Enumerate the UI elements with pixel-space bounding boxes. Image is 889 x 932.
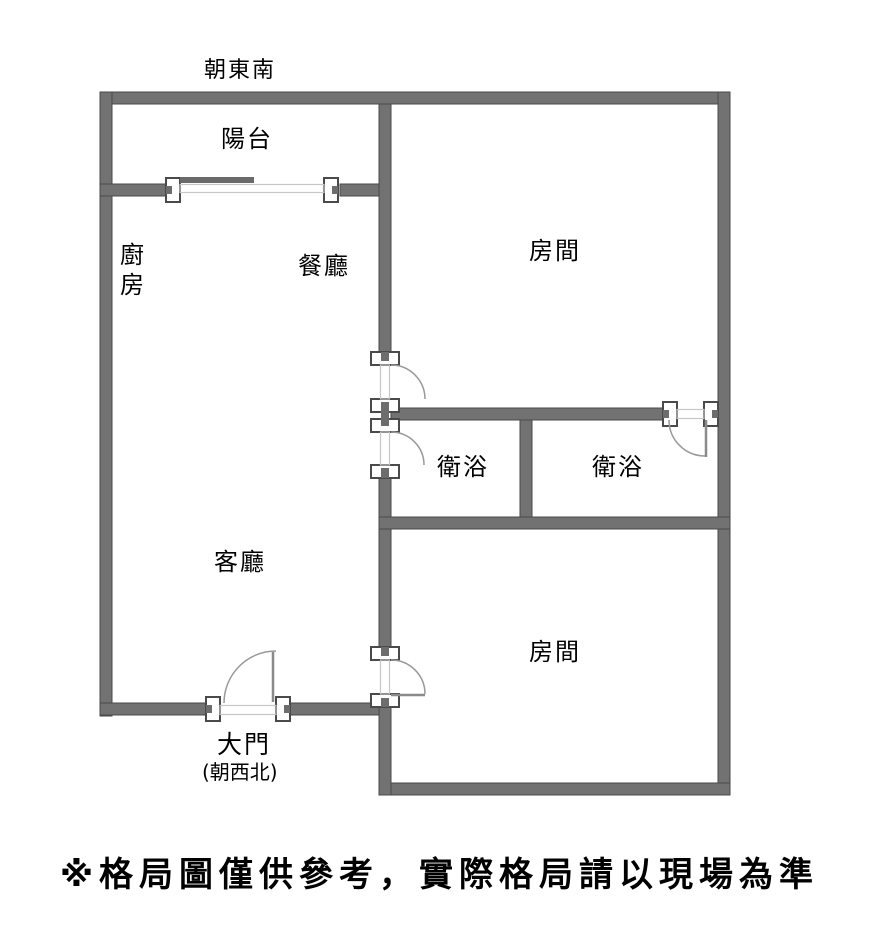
room-label-balcony: 陽台 — [221, 126, 273, 154]
main-door-label: 大門 — [217, 731, 271, 760]
wall-stub-bath-door-left — [663, 410, 669, 418]
room-label-kitchen: 廚房 — [120, 240, 148, 300]
wall-top — [100, 92, 730, 104]
room-label-bathroom-right: 衛浴 — [592, 454, 644, 482]
wall-bathroom-divider — [520, 420, 532, 517]
wall-stub-j6 — [381, 698, 389, 707]
wall-stub-j5 — [381, 647, 389, 656]
room-label-dining: 餐廳 — [298, 253, 350, 281]
wall-stub-main-door-right — [284, 705, 290, 713]
sliding-door-track — [180, 185, 324, 193]
wall-center-upper — [379, 104, 391, 352]
room-label-bedroom-top: 房間 — [529, 238, 581, 266]
wall-bathrooms-top — [391, 408, 663, 420]
room-label-bathroom-left: 衛浴 — [437, 454, 489, 482]
wall-stub-balcony-left — [166, 186, 172, 194]
door-frame-main — [220, 706, 276, 715]
wall-bathrooms-bottom — [379, 517, 730, 529]
door-frame-bedroom-bottom — [381, 660, 390, 694]
door-frame-bathroom-left — [381, 432, 390, 465]
wall-stub-bath-door-right — [712, 410, 718, 418]
wall-stub-center-junction — [381, 402, 389, 426]
door-swing-main — [224, 651, 276, 703]
main-door-facing-label: (朝西北) — [202, 761, 278, 784]
wall-balcony-left — [100, 184, 166, 196]
wall-bottom-bedroom — [379, 783, 730, 795]
wall-bottom-living-left — [100, 703, 206, 715]
facing-label-top: 朝東南 — [204, 58, 276, 83]
wall-center-middle — [379, 478, 391, 647]
wall-stub-balcony-right — [332, 186, 338, 194]
wall-center-lower — [379, 707, 391, 795]
floor-plan-page: 朝東南 陽台 廚房 餐廳 房間 衛浴 衛浴 客廳 房間 大門 (朝西北) ※格局… — [0, 0, 889, 932]
wall-stub-j1 — [381, 352, 389, 361]
wall-stub-main-door-left — [206, 705, 212, 713]
door-frame-bedroom-top — [381, 365, 390, 399]
disclaimer-text: ※格局圖僅供參考，實際格局請以現場為準 — [60, 847, 819, 896]
wall-balcony-right — [340, 184, 380, 196]
room-label-living: 客廳 — [214, 549, 266, 577]
sliding-door-panel — [180, 177, 254, 183]
door-swing-bedroom-bottom — [391, 660, 425, 694]
door-swing-bathroom-left — [391, 432, 424, 465]
wall-right — [718, 92, 730, 795]
wall-stub-j4 — [381, 468, 389, 478]
door-frame-bathroom-right — [677, 410, 704, 419]
room-label-bedroom-bottom: 房間 — [529, 639, 581, 667]
door-swing-bedroom-top — [391, 365, 425, 399]
